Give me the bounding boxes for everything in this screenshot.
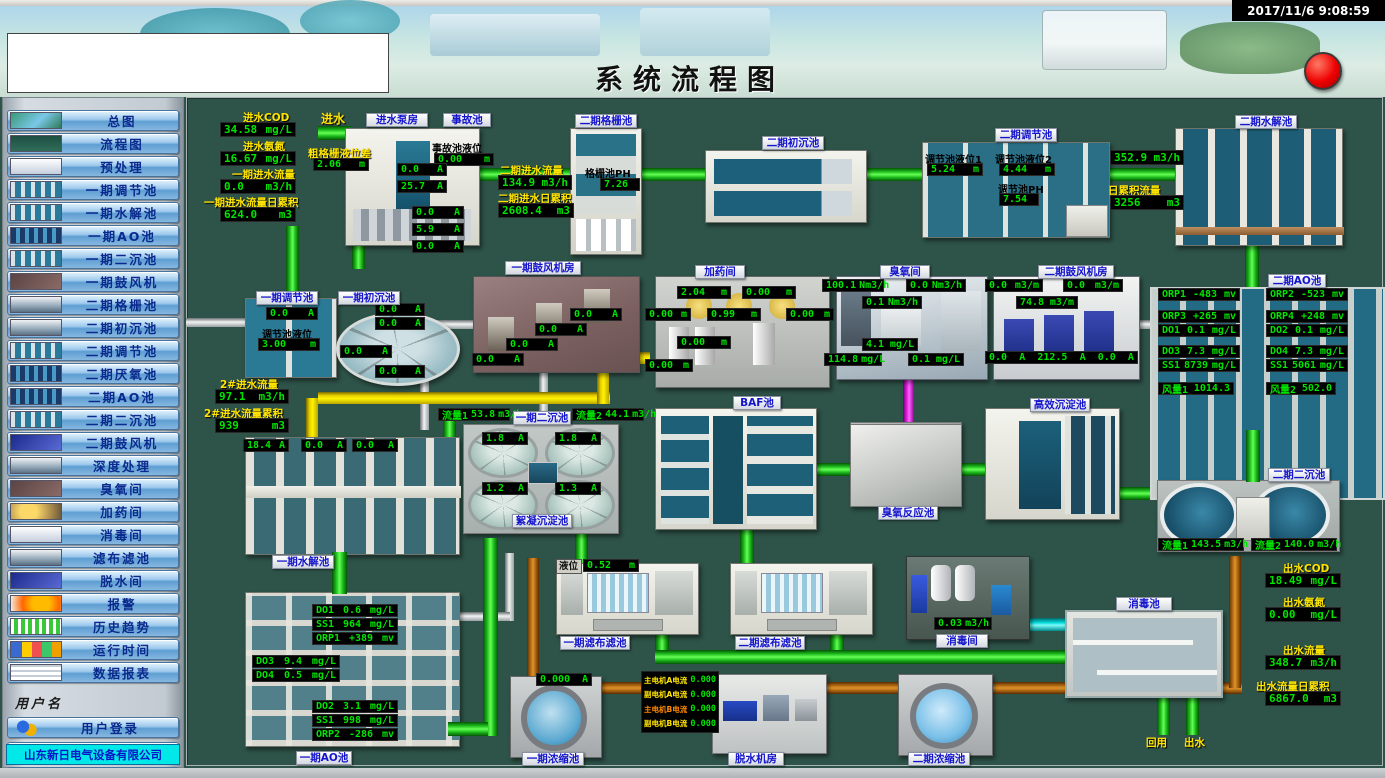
nav-sidebar: 总图 流程图 预处理 一期调节池 一期水解池 一期AO池 一期二沉池 一期鼓风机… [2, 97, 184, 768]
thumbnail-icon [10, 618, 62, 635]
outflow-label: 出水 [1184, 735, 1205, 750]
dosing-level: 0.00m [677, 336, 731, 349]
primary1-current: 0.0A [375, 365, 425, 378]
thickener-dial [521, 685, 587, 751]
ozone-conc: 114.8mg/L [824, 353, 882, 366]
pipe-green [655, 650, 1068, 664]
high-efficiency-clarifier [985, 408, 1120, 520]
pump-current: 0.0A [412, 240, 464, 253]
pipe-dosing-yellow [306, 398, 318, 440]
chip-phase1-cloth-filter[interactable]: 一期滤布滤池 [560, 636, 630, 650]
phase2-primary-clarifier [705, 150, 867, 223]
pump-well [396, 141, 430, 211]
filter-drum [587, 573, 649, 613]
pipe-green [958, 463, 988, 476]
dewatering-machine [723, 701, 757, 721]
dewatering-machine [795, 699, 817, 721]
sidebar-item-label: 数据报表 [66, 663, 178, 682]
regulating-shed [1066, 205, 1108, 237]
thumbnail-icon [10, 112, 62, 129]
thickener1-current: 0.000A [536, 673, 592, 686]
tank-water [1073, 618, 1217, 692]
center-well [528, 462, 558, 484]
hydrolysis1-current: 0.0A [352, 439, 398, 452]
dosing-level: 0.00m [742, 286, 796, 299]
chip-accident-tank[interactable]: 事故池 [443, 113, 491, 127]
sidebar-item-13[interactable]: 二期二沉池 [7, 409, 179, 430]
inlet-nh3-value: 16.67mg/L [220, 151, 296, 166]
phase2-cloth-filter [730, 563, 873, 635]
thumbnail-icon [10, 181, 62, 198]
chip-phase1-thickener[interactable]: 一期浓缩池 [522, 752, 584, 766]
pipe-green [1245, 246, 1259, 288]
sidebar-item-7[interactable]: 一期鼓风机 [7, 271, 179, 292]
chip-phase1-primary[interactable]: 一期初沉池 [338, 291, 400, 305]
daily-total-flow-value: 3256m3 [1110, 195, 1184, 210]
blower2-current-row: 0.0A212.5A0.0A [985, 351, 1138, 364]
sec1-flow2: 流量244.1m3/h [572, 408, 644, 421]
reg1-level-value: 3.00m [258, 338, 320, 351]
chip-inlet-pump-station[interactable]: 进水泵房 [366, 113, 428, 127]
baf-channel [713, 416, 743, 524]
ozone-flow: 0.1Nm3/h [862, 296, 922, 309]
chemical-cylinder [931, 565, 951, 601]
ao1-orp1: ORP1+389mv [312, 632, 398, 645]
thumbnail-icon [10, 549, 62, 566]
filter-side [655, 571, 693, 615]
motor-current-row: 主电机A电流0.000 [644, 675, 716, 686]
walkway [246, 486, 461, 498]
motor-current-row: 副电机A电流0.000 [644, 689, 716, 700]
sec1-current: 1.8A [482, 432, 528, 445]
sidebar-item-label: 二期调节池 [66, 341, 178, 360]
ao2-ss2: SS15061mg/L [1266, 359, 1348, 372]
blower1-current: 0.0A [506, 338, 558, 351]
pump-current: 0.0A [397, 163, 447, 176]
sec2-flow1: 流量1143.5m3/h [1158, 538, 1244, 551]
username-label: 用户名 [15, 693, 171, 712]
blower2-airflow: 74.8m3/m [1016, 296, 1078, 309]
chip-phase2-thickener[interactable]: 二期浓缩池 [908, 752, 970, 766]
phase2-grille-building [570, 128, 642, 255]
sidebar-item-label: 报警 [66, 594, 178, 613]
chip-ozone-room[interactable]: 臭氧间 [880, 265, 930, 279]
sidebar-item-label: 消毒间 [66, 525, 178, 544]
chip-disinfection-room[interactable]: 消毒间 [936, 634, 988, 648]
chip-phase2-ao[interactable]: 二期AO池 [1268, 274, 1326, 288]
pump-current: 25.7A [397, 180, 447, 193]
ao2-orp1: ORP1-483mv [1158, 288, 1240, 301]
sidebar-item-label: 历史趋势 [66, 617, 178, 636]
dosing-panel [911, 575, 927, 613]
sec1-flow1: 流量153.8m3/h [438, 408, 510, 421]
scada-screen: 系统流程图 2017/11/6 9:08:59 总图 流程图 预处理 一期调节池… [0, 0, 1385, 778]
blower2-airflow: 0.0m3/m [985, 279, 1043, 292]
ao1-ss1: SS1964mg/L [312, 618, 398, 631]
baf-lanes [747, 416, 813, 524]
thumbnail-icon [10, 595, 62, 612]
reuse-label: 回用 [1146, 735, 1167, 750]
chip-flocculation[interactable]: 絮凝沉淀池 [512, 514, 572, 528]
baffle [1073, 640, 1193, 645]
ao2-do1: DO10.1mg/L [1158, 324, 1240, 337]
company-label: 山东新日电气设备有限公司 [6, 744, 180, 765]
dewatering-machine [763, 695, 789, 721]
sidebar-item-label: 二期格栅池 [66, 295, 178, 314]
blower2-airflow: 0.0m3/m [1063, 279, 1123, 292]
sidebar-item-19[interactable]: 滤布滤池 [7, 547, 179, 568]
banner-building-photo [640, 8, 770, 56]
grille-tanks [576, 219, 636, 251]
chip-phase2-grille[interactable]: 二期格栅池 [575, 114, 637, 128]
sidebar-item-label: 一期调节池 [66, 180, 178, 199]
header-banner: 系统流程图 [0, 6, 1385, 97]
ao2-orp2: ORP2-523mv [1266, 288, 1348, 301]
clarifier-pool [1019, 421, 1061, 509]
sidebar-item-18[interactable]: 消毒间 [7, 524, 179, 545]
dosing-level: 0.99m [707, 308, 761, 321]
ao1-ss2: SS1998mg/L [312, 714, 398, 727]
baf-cells [661, 416, 709, 524]
sidebar-item-4[interactable]: 一期水解池 [7, 202, 179, 223]
hydrolysis-pipe [1176, 227, 1344, 235]
thumbnail-icon [10, 526, 62, 543]
filter-level-label: 液位 [556, 559, 582, 574]
sidebar-item-label: 预处理 [66, 157, 178, 176]
ao2-orp3: ORP3+265mv [1158, 310, 1240, 323]
ao2-airflow1: 风量11014.3 [1158, 382, 1234, 395]
sidebar-item-label: 二期厌氧池 [66, 364, 178, 383]
thickener-dial [910, 683, 978, 749]
sec1-current: 1.3A [555, 482, 601, 495]
sidebar-item-label: 运行时间 [66, 640, 178, 659]
chemical-cylinder [955, 565, 975, 601]
ao2-do4: DO47.3mg/L [1266, 345, 1348, 358]
pipe-green [641, 168, 707, 181]
clarifier-basin [714, 159, 852, 184]
clarifier-basin [714, 191, 852, 216]
ao2-ss1: SS18739mg/L [1158, 359, 1240, 372]
pipe-sludge-orange [527, 558, 539, 690]
sidebar-item-label: 一期鼓风机 [66, 272, 178, 291]
chip-phase1-blower-room[interactable]: 一期鼓风机房 [505, 261, 581, 275]
sidebar-item-label: 二期鼓风机 [66, 433, 178, 452]
chip-phase2-hydrolysis[interactable]: 二期水解池 [1235, 115, 1297, 129]
thumbnail-icon [10, 135, 62, 152]
pump-current: 0.0A [412, 206, 464, 219]
phase1-inflow-value: 0.0m3/h [220, 179, 296, 194]
phase1-thickener [510, 676, 602, 758]
motor-current-row: 副电机B电流0.000 [644, 718, 716, 729]
sec2-flow2: 流量2140.0m3/h [1251, 538, 1337, 551]
hydrolysis1-current: 18.4A [243, 439, 289, 452]
ao2-orp4: ORP4+248mv [1266, 310, 1348, 323]
thumbnail-icon [10, 664, 62, 681]
lamella-modules [1065, 416, 1115, 514]
sec1-current: 1.2A [482, 482, 528, 495]
thumbnail-icon [10, 250, 62, 267]
sidebar-item-label: 滤布滤池 [66, 548, 178, 567]
user-login-button[interactable]: 用户登录 [7, 717, 179, 738]
ao2-do3: DO37.3mg/L [1158, 345, 1240, 358]
pipe-green [1186, 697, 1199, 735]
inlet-cod-value: 34.58mg/L [220, 122, 296, 137]
page-title: 系统流程图 [540, 58, 840, 98]
user-login-icon [16, 720, 38, 736]
ao1-do2: DO23.1mg/L [312, 700, 398, 713]
blower1-current: 0.0A [472, 353, 524, 366]
pipe-green [863, 168, 923, 181]
pipe-green [1246, 430, 1260, 482]
banner-building-photo [1042, 10, 1167, 70]
reg2-level2-value: 4.44m [999, 163, 1055, 176]
sidebar-item-6[interactable]: 一期二沉池 [7, 248, 179, 269]
dosing-level: 2.04m [677, 286, 731, 299]
pipe-air-white [505, 553, 514, 621]
sidebar-item-label: 一期水解池 [66, 203, 178, 222]
dosing-level: 0.00m [645, 308, 691, 321]
thumbnail-icon [10, 296, 62, 313]
thumbnail-icon [10, 411, 62, 428]
thumbnail-icon [10, 319, 62, 336]
sidebar-item-0[interactable]: 总图 [7, 110, 179, 131]
ozone-flow: 100.1Nm3/h [822, 279, 884, 292]
sidebar-item-label: 臭氧间 [66, 479, 178, 498]
chip-phase1-secondary[interactable]: 一期二沉池 [513, 411, 571, 425]
dewatering-motor-currents: 主电机A电流0.000 副电机A电流0.000 主电机B电流0.000 副电机B… [641, 671, 719, 733]
phase1-inflow-total-value: 624.0m3 [220, 207, 296, 222]
filter-side [829, 571, 867, 615]
chip-dewatering-room[interactable]: 脱水机房 [728, 752, 784, 766]
phase2-inflow-value: 134.9m3/h [498, 175, 572, 190]
thumbnail-icon [10, 388, 62, 405]
chip-phase2-primary[interactable]: 二期初沉池 [762, 136, 824, 150]
primary1-current: 0.0A [375, 317, 425, 330]
pipe-green [448, 722, 488, 736]
ozone-conc: 4.1mg/L [862, 338, 918, 351]
inflow2-total-value: 939m3 [215, 418, 289, 433]
sidebar-item-1[interactable]: 流程图 [7, 133, 179, 154]
sidebar-item-label: 总图 [66, 111, 178, 130]
thumbnail-icon [10, 480, 62, 497]
window-bottom-bar [0, 768, 1385, 778]
dosing-pump [991, 585, 1011, 615]
inflow2-value: 97.1m3/h [215, 389, 289, 404]
thumbnail-icon [10, 227, 62, 244]
thumbnail-icon [10, 342, 62, 359]
disinfection-tank [1065, 610, 1223, 698]
phase2-inflow-total-value: 2608.4m3 [498, 203, 574, 218]
ozone-flow: 0.0Nm3/h [906, 279, 966, 292]
filter-side [735, 571, 757, 615]
primary1-current: 0.0A [340, 345, 392, 358]
pump-current: 5.9A [412, 223, 464, 236]
reg2-level1-value: 5.24m [927, 163, 983, 176]
chip-phase2-regulating[interactable]: 二期调节池 [995, 128, 1057, 142]
thumbnail-icon [10, 457, 62, 474]
filter-tray [767, 619, 837, 631]
pipe-air-white [186, 318, 246, 327]
sec1-current: 1.8A [555, 432, 601, 445]
thumbnail-icon [10, 641, 62, 658]
chip-phase2-blower-room[interactable]: 二期鼓风机房 [1038, 265, 1114, 279]
filter-drum [761, 573, 823, 613]
blank-overlay-box [7, 33, 389, 93]
thumbnail-icon [10, 158, 62, 175]
pipe-dosing-yellow [318, 392, 610, 404]
filter-tray [593, 619, 663, 631]
chip-phase1-regulating[interactable]: 一期调节池 [256, 291, 318, 305]
alarm-indicator-lamp[interactable] [1304, 52, 1342, 90]
filter-level-value: 0.52m [583, 559, 639, 572]
blower1-current: 0.0A [570, 308, 622, 321]
outlet-flow-total-value: 6867.0m3 [1265, 691, 1341, 706]
chip-disinfection-tank[interactable]: 消毒池 [1116, 597, 1172, 611]
chip-phase1-ao[interactable]: 一期AO池 [296, 751, 352, 765]
chip-phase1-hydrolysis[interactable]: 一期水解池 [272, 555, 334, 569]
banner-trees-photo [1180, 22, 1320, 74]
sidebar-item-10[interactable]: 二期调节池 [7, 340, 179, 361]
ozone-reaction-tank [850, 422, 962, 507]
sidebar-item-label: 二期二沉池 [66, 410, 178, 429]
sidebar-item-5[interactable]: 一期AO池 [7, 225, 179, 246]
sidebar-item-22[interactable]: 历史趋势 [7, 616, 179, 637]
outlet-flow-value: 348.7m3/h [1265, 655, 1341, 670]
chip-phase2-cloth-filter[interactable]: 二期滤布滤池 [735, 636, 805, 650]
hydrolysis1-current: 0.0A [301, 439, 347, 452]
sidebar-item-16[interactable]: 臭氧间 [7, 478, 179, 499]
sidebar-item-15[interactable]: 深度处理 [7, 455, 179, 476]
baf-tank [655, 408, 817, 530]
reg2-ph-value: 7.54 [999, 193, 1039, 206]
ozone-machine [941, 291, 981, 351]
inlet-label: 进水 [321, 110, 345, 127]
sidebar-item-23[interactable]: 运行时间 [7, 639, 179, 660]
sidebar-item-label: 流程图 [66, 134, 178, 153]
sidebar-item-3[interactable]: 一期调节池 [7, 179, 179, 200]
grille-ph-value: 7.26 [600, 178, 640, 191]
pipe-disinfect-cyan [1026, 618, 1068, 631]
dosing-level: 0.00m [786, 308, 834, 321]
reg1-current: 0.0A [266, 307, 318, 320]
phase2-hydrolysis-tank [1175, 128, 1343, 246]
phase2-thickener [898, 674, 993, 756]
filter-side [561, 571, 583, 615]
ao1-do4: DO40.5mg/L [252, 669, 340, 682]
thumbnail-icon [10, 273, 62, 290]
chip-dosing-room[interactable]: 加药间 [695, 265, 745, 279]
sidebar-item-24[interactable]: 数据报表 [7, 662, 179, 683]
sidebar-item-21[interactable]: 报警 [7, 593, 179, 614]
sidebar-item-label: 深度处理 [66, 456, 178, 475]
pipe-sludge-orange [1229, 556, 1241, 688]
sidebar-item-17[interactable]: 加药间 [7, 501, 179, 522]
chip-baf[interactable]: BAF池 [733, 396, 781, 410]
sidebar-item-11[interactable]: 二期厌氧池 [7, 363, 179, 384]
ao2-airflow2: 风量2502.0 [1266, 382, 1336, 395]
sidebar-item-label: 一期AO池 [66, 226, 178, 245]
phase2-hydrolysis-flow-value: 352.9m3/h [1110, 150, 1184, 165]
baffle [1097, 670, 1217, 675]
sidebar-item-20[interactable]: 脱水间 [7, 570, 179, 591]
pipe-green [740, 527, 754, 567]
ao1-do3: DO39.4mg/L [252, 655, 340, 668]
dewatering-room [712, 674, 827, 754]
coarse-screen-level-value: 2.06m [313, 158, 369, 171]
sidebar-item-14[interactable]: 二期鼓风机 [7, 432, 179, 453]
ao2-do2: DO20.1mg/L [1266, 324, 1348, 337]
phase1-hydrolysis-tank [245, 437, 460, 555]
thumbnail-icon [10, 572, 62, 589]
sidebar-item-label: 一期二沉池 [66, 249, 178, 268]
sidebar-item-12[interactable]: 二期AO池 [7, 386, 179, 407]
pipe-green [483, 538, 498, 736]
sidebar-item-label: 二期AO池 [66, 387, 178, 406]
sidebar-item-label: 二期初沉池 [66, 318, 178, 337]
sidebar-item-label: 脱水间 [66, 571, 178, 590]
blower1-current: 0.0A [535, 323, 587, 336]
dosing-level: 0.00m [645, 359, 693, 372]
ao1-orp2: ORP2-286mv [312, 728, 398, 741]
thumbnail-icon [10, 503, 62, 520]
thumbnail-icon [10, 204, 62, 221]
motor-current-row: 主电机B电流0.000 [644, 704, 716, 715]
ao1-do1: DO10.6mg/L [312, 604, 398, 617]
chip-ozone-reaction[interactable]: 臭氧反应池 [878, 506, 938, 520]
chip-phase2-secondary[interactable]: 二期二沉池 [1268, 468, 1330, 482]
outlet-cod-value: 18.49mg/L [1265, 573, 1341, 588]
disinfection-flow-value: 0.03m3/h [934, 617, 992, 630]
sidebar-item-label: 加药间 [66, 502, 178, 521]
sidebar-item-9[interactable]: 二期初沉池 [7, 317, 179, 338]
sidebar-item-8[interactable]: 二期格栅池 [7, 294, 179, 315]
banner-building-photo [430, 14, 600, 56]
pipe-green [1105, 168, 1177, 181]
sidebar-item-2[interactable]: 预处理 [7, 156, 179, 177]
user-login-label: 用户登录 [42, 718, 178, 737]
pipe-green [352, 243, 365, 269]
pipe-green [332, 552, 347, 594]
datetime-display: 2017/11/6 9:08:59 [1232, 0, 1385, 21]
dosing-cylinder [753, 323, 775, 365]
pipe-green [1157, 697, 1170, 735]
thumbnail-icon [10, 434, 62, 451]
thumbnail-icon [10, 365, 62, 382]
outlet-nh3-value: 0.00mg/L [1265, 607, 1341, 622]
center-shed [1236, 497, 1270, 541]
ozone-conc: 0.1mg/L [908, 353, 964, 366]
chip-high-efficiency[interactable]: 高效沉淀池 [1030, 398, 1090, 412]
